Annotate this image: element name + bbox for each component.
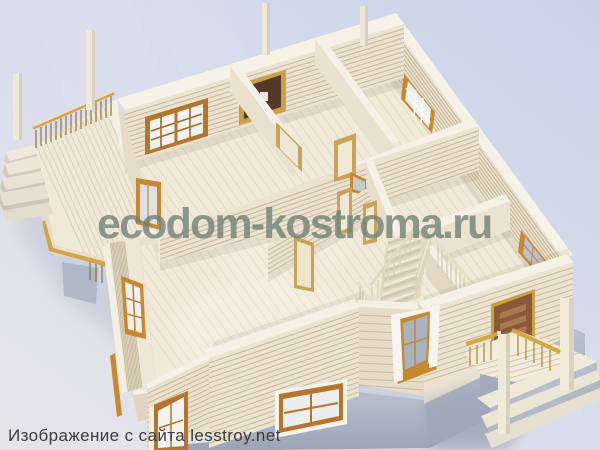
svg-text:Изображение с сайта lesstroy.n: Изображение с сайта lesstroy.net [8, 426, 281, 445]
svg-text:ecodom-kostroma.ru: ecodom-kostroma.ru [97, 200, 491, 248]
